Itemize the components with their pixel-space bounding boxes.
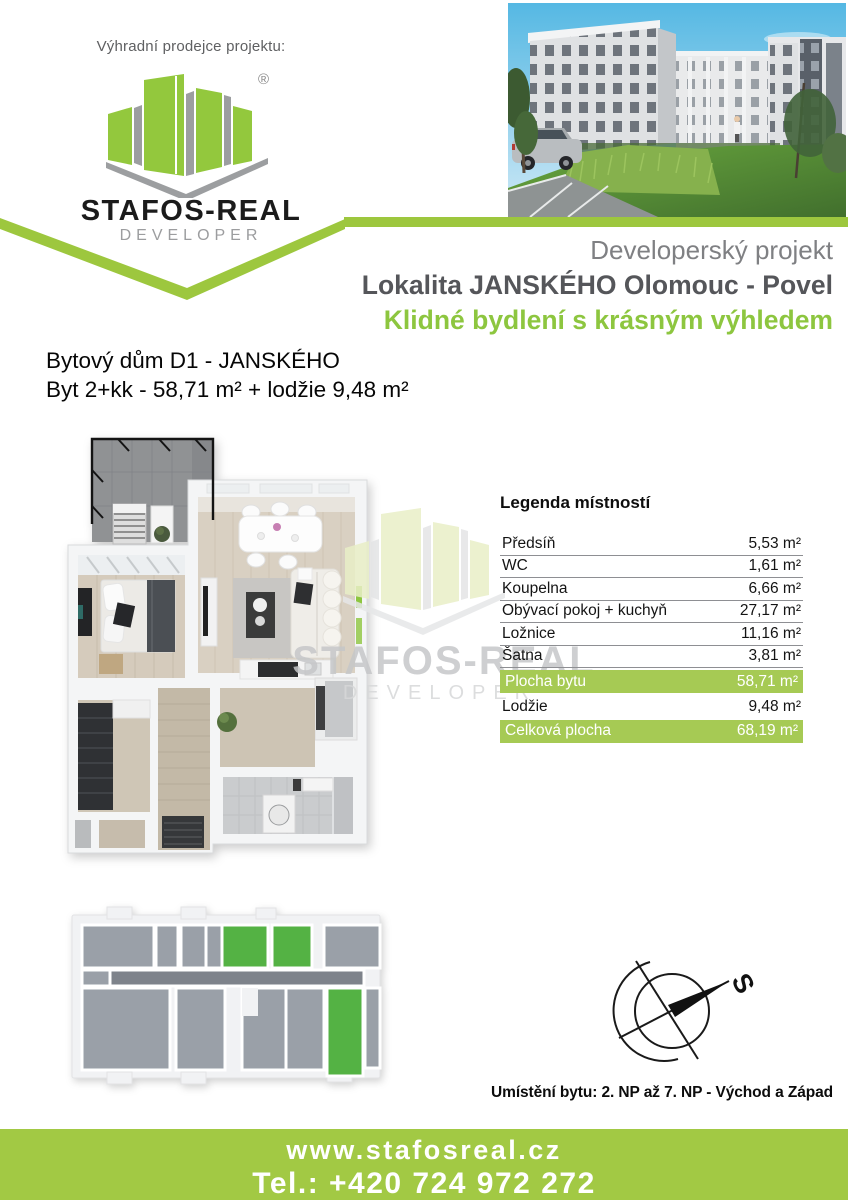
- placement-text: Umístění bytu: 2. NP až 7. NP - Východ a…: [491, 1084, 833, 1102]
- footer-band: www.stafosreal.cz Tel.: +420 724 972 272: [0, 1129, 848, 1200]
- registered-mark: ®: [258, 71, 269, 88]
- project-slogan-line: Klidné bydlení s krásným výhledem: [362, 303, 833, 338]
- legend-row-lodzie: Lodžie 9,48 m²: [500, 696, 803, 718]
- legend-row-loznice: Ložnice 11,16 m²: [500, 623, 803, 646]
- project-type-line: Developerský projekt: [362, 233, 833, 268]
- apartment-unit-line: Byt 2+kk - 58,71 m² + lodžie 9,48 m²: [46, 375, 409, 404]
- apartment-building-line: Bytový dům D1 - JANSKÉHO: [46, 346, 409, 375]
- legend-row-satna: Šatna 3,81 m²: [500, 646, 803, 669]
- stafos-real-logo-icon: ®: [100, 64, 278, 198]
- legend-row-celkova-plocha: Celková plocha 68,19 m²: [500, 720, 803, 743]
- apartment-title: Bytový dům D1 - JANSKÉHO Byt 2+kk - 58,7…: [46, 346, 409, 404]
- exclusive-seller-label: Výhradní prodejce projektu:: [58, 38, 324, 55]
- compass-icon: S: [605, 948, 770, 1076]
- room-legend: Legenda místností Předsíň 5,53 m² WC 1,6…: [500, 493, 803, 746]
- legend-row-plocha-bytu: Plocha bytu 58,71 m²: [500, 670, 803, 693]
- flyer-page: Výhradní prodejce projektu: ® STAFOS-REA…: [0, 0, 848, 1200]
- compass-north-label: S: [726, 968, 761, 998]
- website-text: www.stafosreal.cz: [0, 1135, 848, 1166]
- legend-title: Legenda místností: [500, 493, 803, 513]
- legend-row-wc: WC 1,61 m²: [500, 556, 803, 579]
- legend-row-predsin: Předsíň 5,53 m²: [500, 533, 803, 556]
- phone-text: Tel.: +420 724 972 272: [0, 1167, 848, 1200]
- legend-row-koupelna: Koupelna 6,66 m²: [500, 578, 803, 601]
- building-photo: [508, 3, 846, 217]
- floor-overview-image: [60, 898, 390, 1098]
- project-location-line: Lokalita JANSKÉHO Olomouc - Povel: [362, 268, 833, 303]
- legend-row-obyvaci-pokoj: Obývací pokoj + kuchyň 27,17 m²: [500, 601, 803, 624]
- project-header: Developerský projekt Lokalita JANSKÉHO O…: [362, 233, 833, 338]
